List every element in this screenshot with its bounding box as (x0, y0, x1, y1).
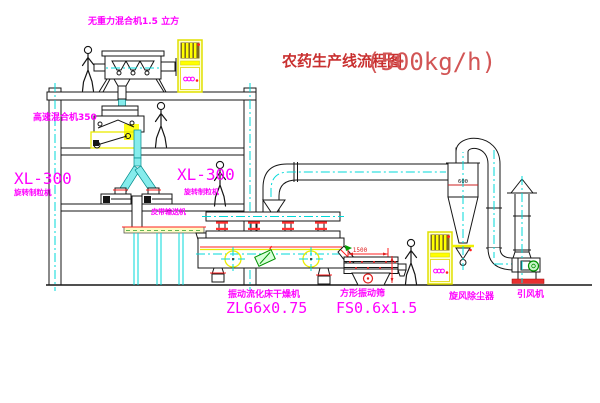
control-cabinet-roof (178, 40, 202, 92)
label-sieve-model: FS0.6x1.5 (336, 299, 417, 317)
label-cyclone: 旋风除尘器 (448, 290, 495, 302)
worker-figure-floor2 (156, 102, 167, 147)
belt-conveyor (122, 227, 210, 285)
fluid-bed-dryer (196, 200, 356, 284)
label-sieve: 方形振动筛 (340, 287, 385, 299)
label-granulator-left-model: XL-300 (14, 169, 72, 188)
label-dryer-model: ZLG6x0.75 (226, 299, 307, 317)
fan-motor (529, 261, 539, 271)
control-cabinet-ground (428, 232, 452, 284)
label-fan: 引风机 (517, 288, 544, 300)
worker-figure-ground (406, 239, 417, 284)
induced-draft-fan-stack (507, 176, 544, 284)
label-granulator-left-name: 旋转制粒机 (13, 187, 52, 197)
rotary-granulators (101, 158, 172, 229)
exhaust-duct (263, 162, 448, 214)
dimension-cyclone: 600 (458, 179, 468, 185)
label-granulator-right-model: XL-300 (177, 165, 235, 184)
drawing-canvas: 农药生产线流程图 (500kg/h) 无重力混合机1.5 立方 高速混合机350… (0, 0, 600, 403)
drawing-capacity: (500kg/h) (366, 48, 496, 76)
label-granulator-right-name: 旋转制粒机 (183, 187, 219, 196)
label-belt-conveyor: 皮带输送机 (150, 207, 186, 216)
label-gravity-mixer: 无重力混合机1.5 立方 (87, 15, 179, 27)
dimension-sieve-width: 1500 (353, 247, 368, 254)
cad-process-flow-drawing: 农药生产线流程图 (500kg/h) 无重力混合机1.5 立方 高速混合机350… (0, 0, 600, 403)
discharge-chute (132, 196, 142, 229)
dryer-top-ports (216, 221, 327, 231)
label-high-speed-mixer: 高速混合机350 (33, 111, 97, 123)
worker-figure-roof (83, 46, 94, 91)
dryer-feet (210, 268, 332, 284)
